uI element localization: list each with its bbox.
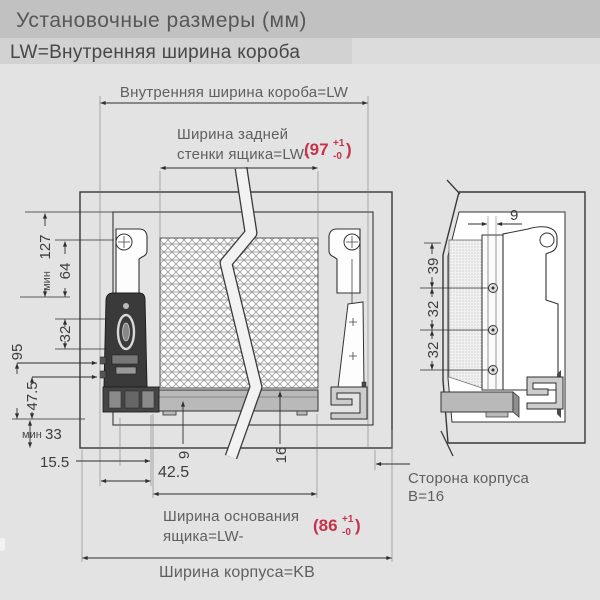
dim-39-side: 39: [425, 258, 442, 275]
dim-33: 33: [45, 426, 62, 443]
screw-hole: [489, 284, 498, 293]
dim-95: 95: [9, 344, 26, 361]
dim-33-min-prefix: мин: [22, 429, 42, 441]
side-view-rail: [482, 235, 503, 390]
right-rail-profile: [331, 387, 367, 419]
dim-42-5: 42.5: [158, 464, 189, 481]
tolerance-plus: +1: [342, 514, 354, 525]
dim-64: 64: [57, 263, 74, 280]
dim-15-5: 15.5: [40, 454, 69, 471]
side-thickness-label-1: Сторона корпуса: [408, 470, 530, 487]
profile-ear-hole: [540, 233, 554, 247]
back-width-label-1: Ширина задней: [177, 126, 288, 143]
screw-hole: [489, 326, 498, 335]
base-width-label-1: Ширина основания: [163, 508, 299, 525]
back-width-label-2: стенки ящика=LW-: [177, 146, 309, 163]
drawer-base-panel: [155, 390, 318, 415]
tolerance-plus: +1: [333, 138, 345, 149]
side-thickness-label-2: В=16: [408, 488, 444, 505]
screw-hole: [489, 366, 498, 375]
dim-32-front: 32: [57, 326, 74, 343]
tolerance-minus: -0: [342, 527, 351, 538]
cabinet-width-label: Ширина корпуса=KB: [159, 564, 315, 581]
dim-32-side-upper: 32: [425, 301, 442, 318]
dim-127: 127: [37, 234, 54, 259]
dim-16-front: 16: [273, 447, 290, 464]
tolerance-value: (97: [304, 140, 329, 159]
dim-9-front: 9: [176, 451, 193, 459]
installation-diagram: Установочные размеры (мм) LW=Внутренняя …: [0, 0, 600, 600]
dim-32-side-lower: 32: [425, 342, 442, 359]
dim-127-min-prefix: мин: [41, 271, 53, 291]
screenshot-root: Установочные размеры (мм) LW=Внутренняя …: [0, 0, 600, 600]
page-subtitle: LW=Внутренняя ширина короба: [10, 42, 300, 63]
inner-width-label: Внутренняя ширина короба=LW: [120, 84, 349, 101]
dim-47-5: 47.5: [24, 381, 41, 410]
dim-9-side: 9: [510, 207, 518, 224]
side-panel-texture: [449, 240, 482, 388]
header: Установочные размеры (мм) LW=Внутренняя …: [0, 0, 600, 64]
tolerance-paren: ): [355, 516, 361, 535]
side-rail-profile: [527, 377, 563, 409]
tolerance-paren: ): [346, 140, 352, 159]
edge-artifact: [0, 538, 5, 551]
base-width-label-2: ящика=LW-: [163, 528, 244, 545]
tolerance-value: (86: [313, 516, 338, 535]
page-title: Установочные размеры (мм): [16, 9, 307, 32]
tolerance-minus: -0: [333, 151, 342, 162]
